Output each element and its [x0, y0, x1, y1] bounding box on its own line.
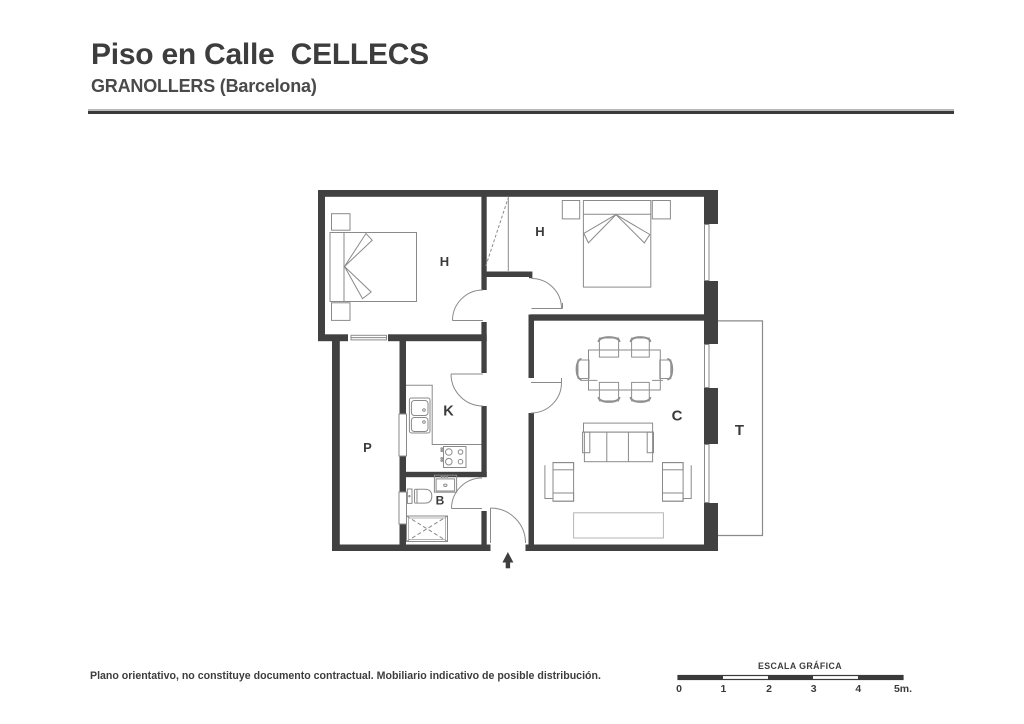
svg-text:4: 4	[855, 683, 861, 695]
svg-text:2: 2	[766, 683, 772, 695]
svg-text:H: H	[535, 224, 544, 239]
svg-text:3: 3	[811, 683, 817, 695]
svg-text:0: 0	[676, 683, 682, 695]
svg-text:K: K	[443, 404, 454, 420]
svg-text:T: T	[735, 422, 744, 439]
svg-text:P: P	[363, 440, 372, 455]
svg-text:B: B	[436, 493, 445, 507]
svg-text:C: C	[672, 407, 683, 424]
svg-text:1: 1	[720, 683, 726, 695]
svg-text:5m.: 5m.	[894, 683, 912, 695]
svg-text:H: H	[440, 254, 449, 269]
